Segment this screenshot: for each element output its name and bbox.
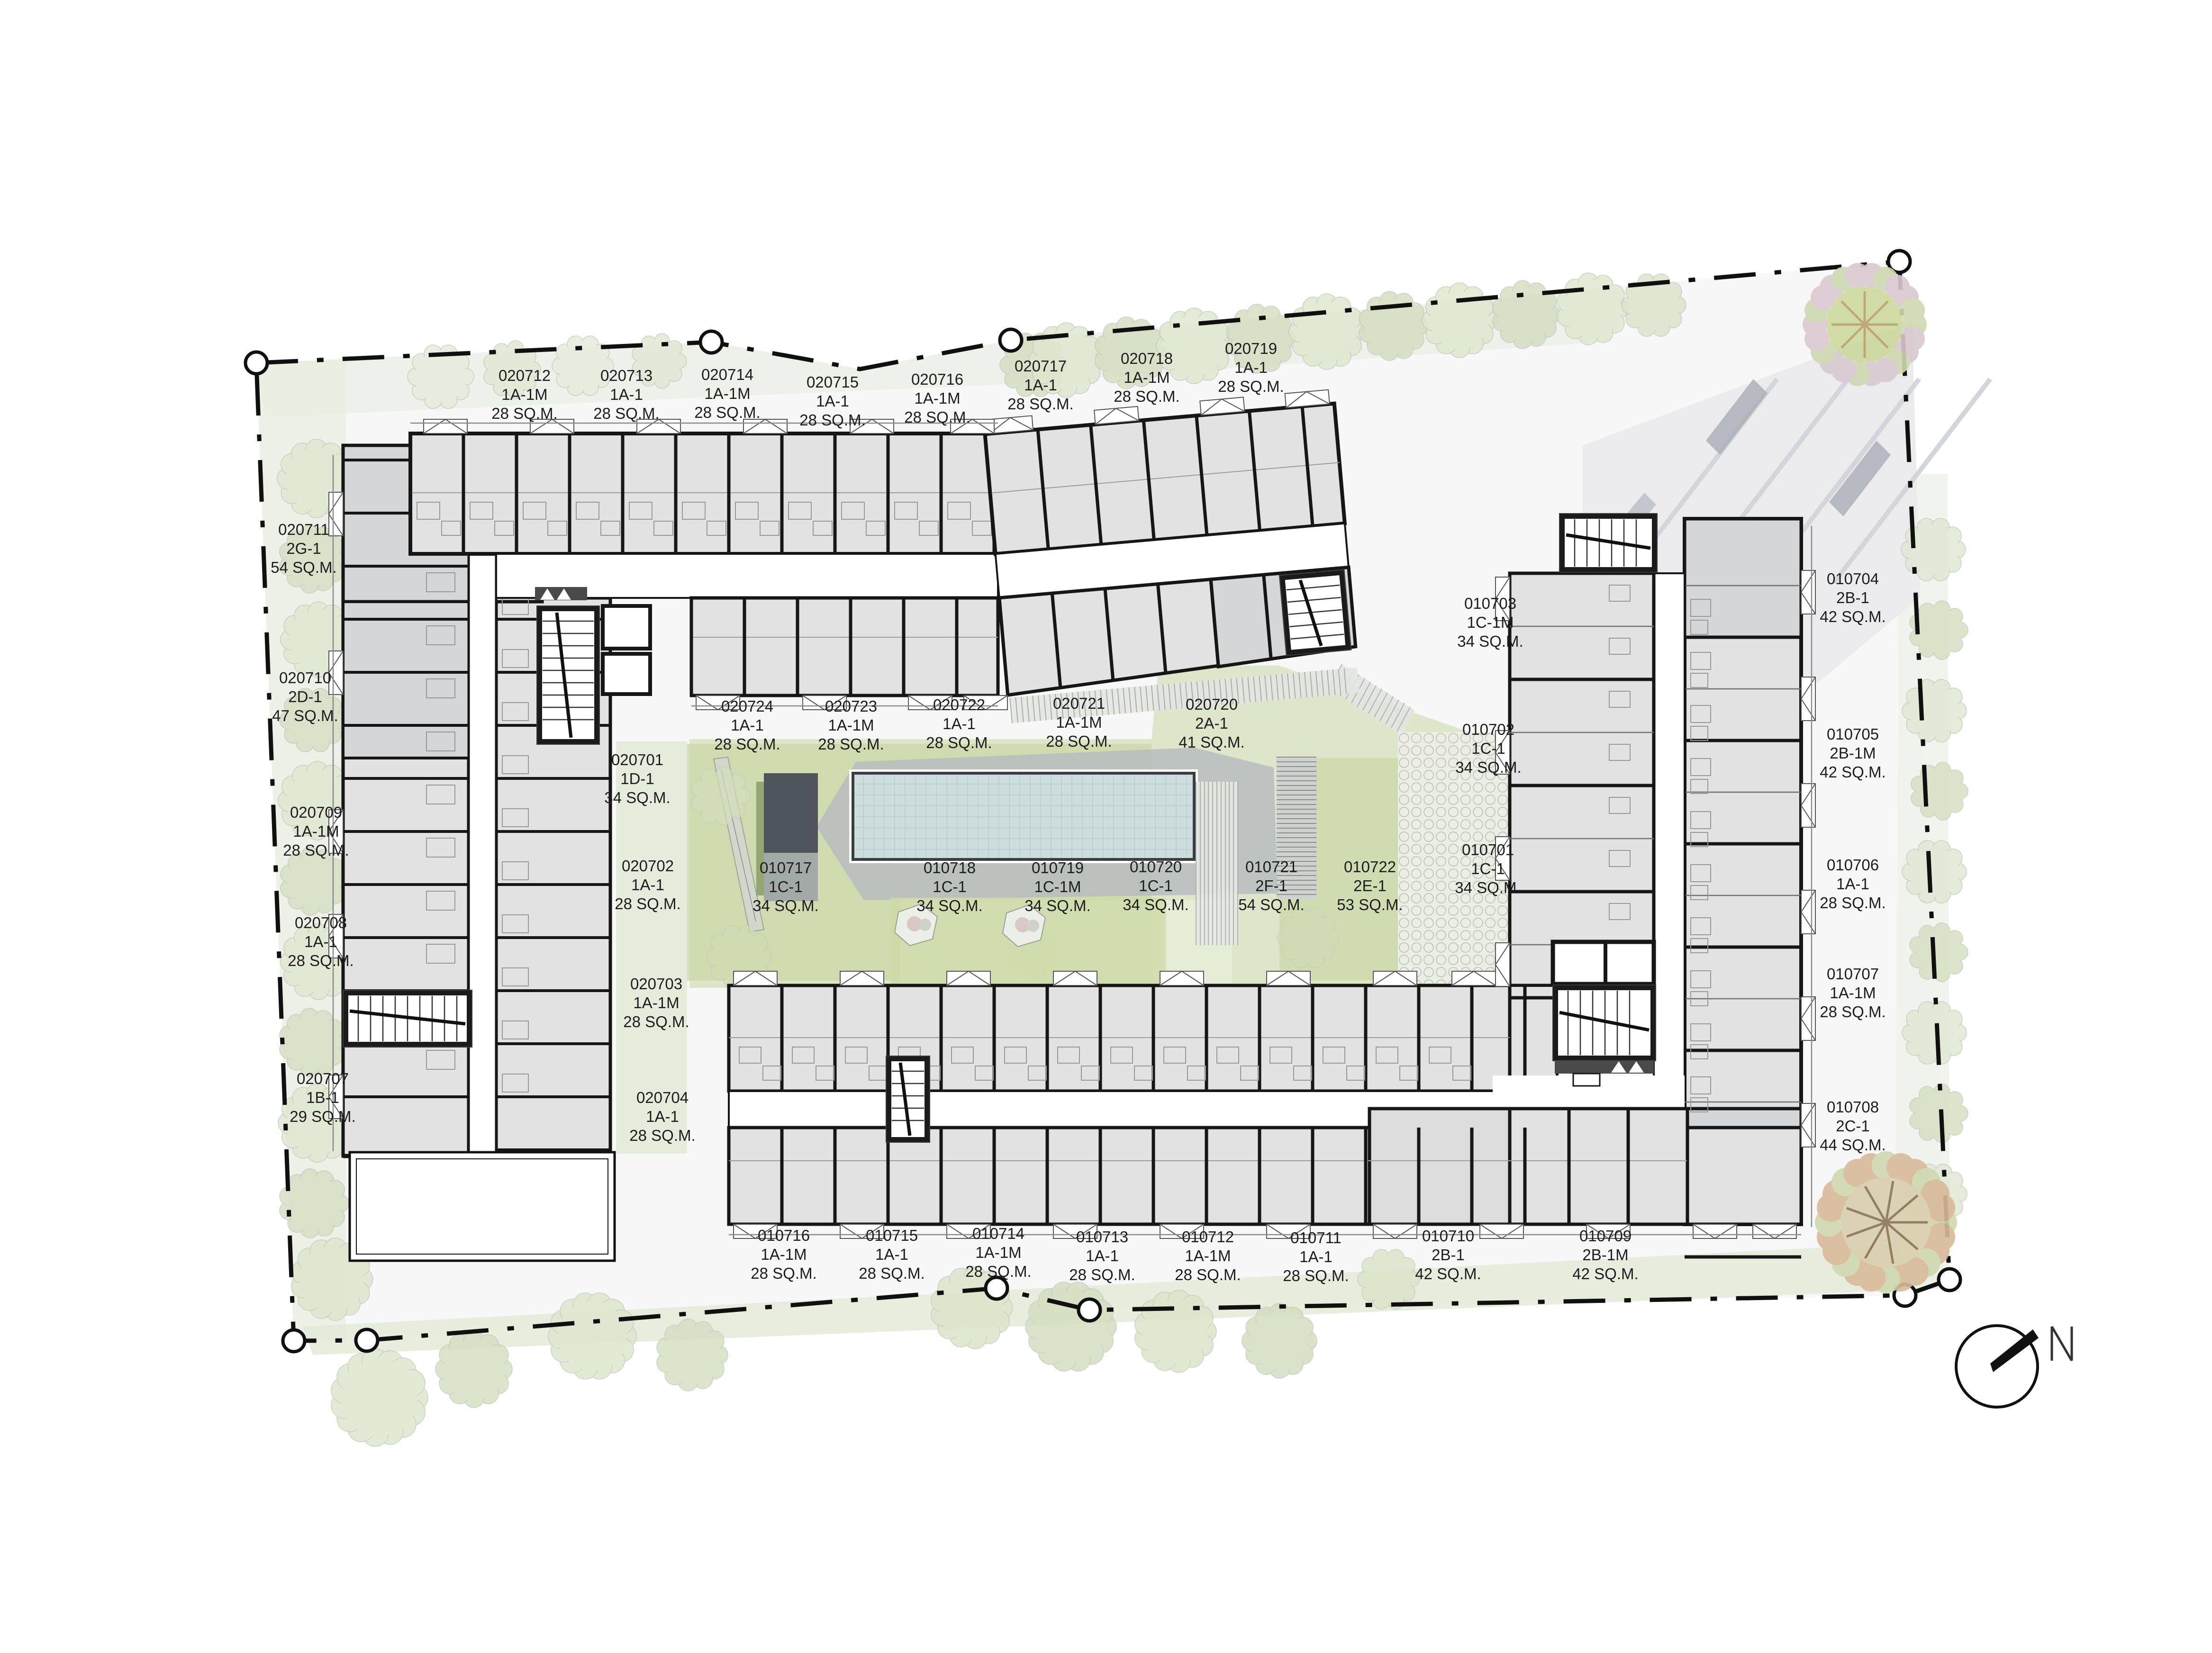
svg-text:010717: 010717 [760, 859, 812, 876]
svg-text:28 SQ.M.: 28 SQ.M. [1283, 1267, 1349, 1284]
svg-text:020713: 020713 [600, 367, 653, 384]
svg-text:1B-1: 1B-1 [306, 1089, 339, 1106]
svg-text:010711: 010711 [1290, 1229, 1342, 1247]
svg-text:010714: 010714 [972, 1225, 1024, 1242]
svg-text:28 SQ.M.: 28 SQ.M. [926, 734, 992, 751]
svg-text:1A-1: 1A-1 [646, 1108, 679, 1125]
svg-text:1A-1: 1A-1 [943, 715, 976, 732]
svg-text:020704: 020704 [636, 1089, 689, 1106]
svg-text:020703: 020703 [630, 975, 682, 993]
svg-text:1A-1: 1A-1 [1086, 1247, 1119, 1265]
svg-text:54 SQ.M.: 54 SQ.M. [271, 559, 336, 576]
svg-text:1A-1: 1A-1 [875, 1246, 908, 1263]
svg-text:1C-1M: 1C-1M [1034, 878, 1081, 895]
svg-text:2E-1: 2E-1 [1353, 877, 1387, 894]
svg-text:2F-1: 2F-1 [1255, 877, 1287, 894]
svg-text:28 SQ.M.: 28 SQ.M. [629, 1127, 695, 1144]
svg-text:2G-1: 2G-1 [286, 540, 321, 557]
svg-text:1C-1: 1C-1 [1139, 877, 1173, 894]
svg-text:34 SQ.M.: 34 SQ.M. [1024, 897, 1090, 914]
svg-text:2B-1: 2B-1 [1432, 1246, 1465, 1264]
svg-text:47 SQ.M.: 47 SQ.M. [272, 707, 338, 724]
svg-text:020712: 020712 [499, 367, 551, 384]
svg-text:020716: 020716 [911, 370, 963, 388]
svg-text:54 SQ.M.: 54 SQ.M. [1238, 896, 1304, 913]
svg-text:28 SQ.M.: 28 SQ.M. [751, 1265, 816, 1282]
svg-text:28 SQ.M.: 28 SQ.M. [1069, 1266, 1135, 1283]
svg-text:020711: 020711 [278, 521, 329, 538]
svg-text:1A-1M: 1A-1M [914, 389, 960, 407]
svg-text:28 SQ.M.: 28 SQ.M. [714, 735, 780, 753]
svg-text:1A-1M: 1A-1M [828, 716, 874, 734]
svg-text:1A-1: 1A-1 [1299, 1248, 1333, 1265]
svg-text:34 SQ.M.: 34 SQ.M. [604, 789, 670, 806]
svg-text:1A-1M: 1A-1M [1124, 369, 1169, 386]
svg-text:1A-1M: 1A-1M [1830, 984, 1876, 1002]
svg-text:010709: 010709 [1579, 1227, 1632, 1245]
svg-text:2B-1M: 2B-1M [1830, 744, 1876, 762]
svg-text:1C-1: 1C-1 [933, 878, 967, 895]
svg-text:28 SQ.M.: 28 SQ.M. [965, 1263, 1031, 1280]
svg-text:1A-1: 1A-1 [631, 876, 664, 894]
svg-text:020714: 020714 [701, 366, 753, 383]
svg-text:020718: 020718 [1121, 350, 1173, 367]
svg-text:010705: 010705 [1827, 725, 1879, 743]
svg-text:020717: 020717 [1015, 357, 1067, 375]
svg-text:1D-1: 1D-1 [620, 770, 654, 787]
svg-text:34 SQ.M.: 34 SQ.M. [1455, 759, 1521, 776]
svg-text:1A-1M: 1A-1M [1056, 714, 1102, 731]
svg-text:28 SQ.M.: 28 SQ.M. [1820, 1003, 1886, 1021]
svg-text:010716: 010716 [758, 1227, 810, 1244]
svg-text:28 SQ.M.: 28 SQ.M. [1175, 1266, 1241, 1283]
svg-text:1A-1: 1A-1 [1836, 875, 1869, 893]
svg-text:28 SQ.M.: 28 SQ.M. [799, 411, 865, 429]
svg-text:010704: 010704 [1827, 570, 1879, 587]
svg-text:42 SQ.M.: 42 SQ.M. [1820, 763, 1886, 781]
svg-text:010722: 010722 [1344, 858, 1396, 876]
svg-text:28 SQ.M.: 28 SQ.M. [615, 895, 680, 912]
svg-text:28 SQ.M.: 28 SQ.M. [593, 405, 659, 422]
svg-text:42 SQ.M.: 42 SQ.M. [1415, 1265, 1481, 1283]
svg-text:42 SQ.M.: 42 SQ.M. [1820, 608, 1886, 625]
svg-text:34 SQ.M.: 34 SQ.M. [1123, 896, 1188, 913]
svg-text:34 SQ.M.: 34 SQ.M. [1455, 879, 1521, 896]
svg-text:010718: 010718 [924, 859, 976, 876]
svg-text:34 SQ.M.: 34 SQ.M. [752, 897, 818, 914]
svg-text:1C-1: 1C-1 [769, 878, 803, 895]
svg-text:020719: 020719 [1225, 340, 1277, 357]
svg-text:1A-1M: 1A-1M [1185, 1247, 1231, 1265]
svg-text:53 SQ.M.: 53 SQ.M. [1337, 896, 1403, 913]
svg-text:1A-1M: 1A-1M [501, 386, 547, 403]
svg-text:28 SQ.M.: 28 SQ.M. [904, 408, 970, 426]
svg-text:020723: 020723 [825, 697, 877, 715]
svg-text:020702: 020702 [622, 857, 674, 875]
svg-text:28 SQ.M.: 28 SQ.M. [818, 735, 884, 753]
svg-text:020710: 020710 [279, 669, 331, 686]
svg-text:28 SQ.M.: 28 SQ.M. [1046, 732, 1112, 750]
svg-text:44 SQ.M.: 44 SQ.M. [1820, 1136, 1886, 1154]
svg-text:2A-1: 2A-1 [1195, 714, 1228, 732]
svg-text:010715: 010715 [866, 1227, 918, 1244]
svg-text:020701: 020701 [611, 751, 663, 768]
svg-text:1A-1M: 1A-1M [293, 822, 339, 840]
svg-text:28 SQ.M.: 28 SQ.M. [694, 404, 760, 421]
svg-text:42 SQ.M.: 42 SQ.M. [1572, 1265, 1638, 1283]
svg-text:020721: 020721 [1053, 695, 1105, 712]
svg-text:1A-1M: 1A-1M [975, 1244, 1021, 1261]
svg-text:010720: 010720 [1130, 858, 1182, 876]
svg-text:010721: 010721 [1245, 858, 1297, 876]
svg-text:1C-1: 1C-1 [1471, 860, 1505, 877]
svg-text:010701: 010701 [1462, 841, 1514, 858]
svg-text:1A-1: 1A-1 [304, 933, 337, 950]
svg-text:1A-1: 1A-1 [816, 392, 849, 410]
svg-text:010703: 010703 [1464, 595, 1516, 612]
svg-text:28 SQ.M.: 28 SQ.M. [1820, 894, 1886, 912]
svg-text:020724: 020724 [721, 697, 773, 715]
svg-text:010719: 010719 [1032, 859, 1084, 876]
svg-text:010712: 010712 [1182, 1228, 1234, 1246]
svg-text:28 SQ.M.: 28 SQ.M. [491, 405, 557, 422]
svg-text:41 SQ.M.: 41 SQ.M. [1179, 733, 1244, 751]
svg-text:010707: 010707 [1827, 965, 1879, 983]
svg-text:1A-1: 1A-1 [1234, 359, 1268, 376]
svg-text:010706: 010706 [1827, 856, 1879, 874]
svg-text:28 SQ.M.: 28 SQ.M. [288, 952, 354, 969]
svg-text:28 SQ.M.: 28 SQ.M. [283, 841, 349, 859]
svg-text:010710: 010710 [1422, 1227, 1474, 1245]
svg-text:1C-1: 1C-1 [1471, 740, 1505, 757]
svg-text:28 SQ.M.: 28 SQ.M. [623, 1013, 689, 1030]
svg-text:020707: 020707 [297, 1070, 349, 1087]
svg-text:34 SQ.M.: 34 SQ.M. [916, 897, 982, 914]
svg-text:020720: 020720 [1186, 696, 1238, 713]
svg-text:010708: 010708 [1827, 1098, 1879, 1116]
svg-text:29 SQ.M.: 29 SQ.M. [290, 1108, 355, 1125]
svg-text:2C-1: 2C-1 [1836, 1117, 1870, 1135]
svg-text:28 SQ.M.: 28 SQ.M. [859, 1265, 925, 1282]
svg-text:1A-1: 1A-1 [731, 716, 764, 734]
svg-text:020708: 020708 [295, 914, 347, 931]
svg-text:28 SQ.M.: 28 SQ.M. [1007, 395, 1073, 413]
svg-text:020709: 020709 [290, 804, 342, 821]
svg-text:1A-1: 1A-1 [1024, 376, 1057, 394]
svg-text:2B-1: 2B-1 [1836, 589, 1869, 606]
svg-text:28 SQ.M.: 28 SQ.M. [1114, 388, 1179, 405]
svg-text:010702: 010702 [1462, 721, 1514, 738]
svg-text:1C-1M: 1C-1M [1467, 614, 1514, 631]
svg-text:020715: 020715 [807, 373, 859, 391]
svg-text:1A-1M: 1A-1M [704, 385, 750, 402]
svg-text:2D-1: 2D-1 [288, 688, 322, 705]
svg-text:2B-1M: 2B-1M [1582, 1246, 1628, 1264]
svg-text:1A-1: 1A-1 [610, 386, 643, 403]
svg-text:34 SQ.M.: 34 SQ.M. [1457, 632, 1523, 650]
svg-text:1A-1M: 1A-1M [633, 994, 679, 1012]
svg-text:28 SQ.M.: 28 SQ.M. [1218, 378, 1284, 395]
svg-text:020722: 020722 [933, 696, 985, 714]
svg-text:1A-1M: 1A-1M [761, 1246, 807, 1263]
svg-text:010713: 010713 [1076, 1228, 1128, 1246]
